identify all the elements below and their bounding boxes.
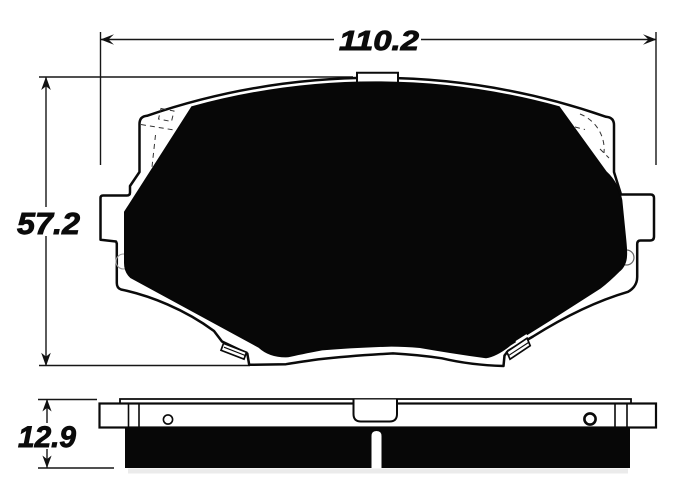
svg-text:57.2: 57.2 [17, 206, 80, 241]
svg-text:110.2: 110.2 [339, 25, 419, 56]
svg-text:12.9: 12.9 [18, 421, 76, 454]
